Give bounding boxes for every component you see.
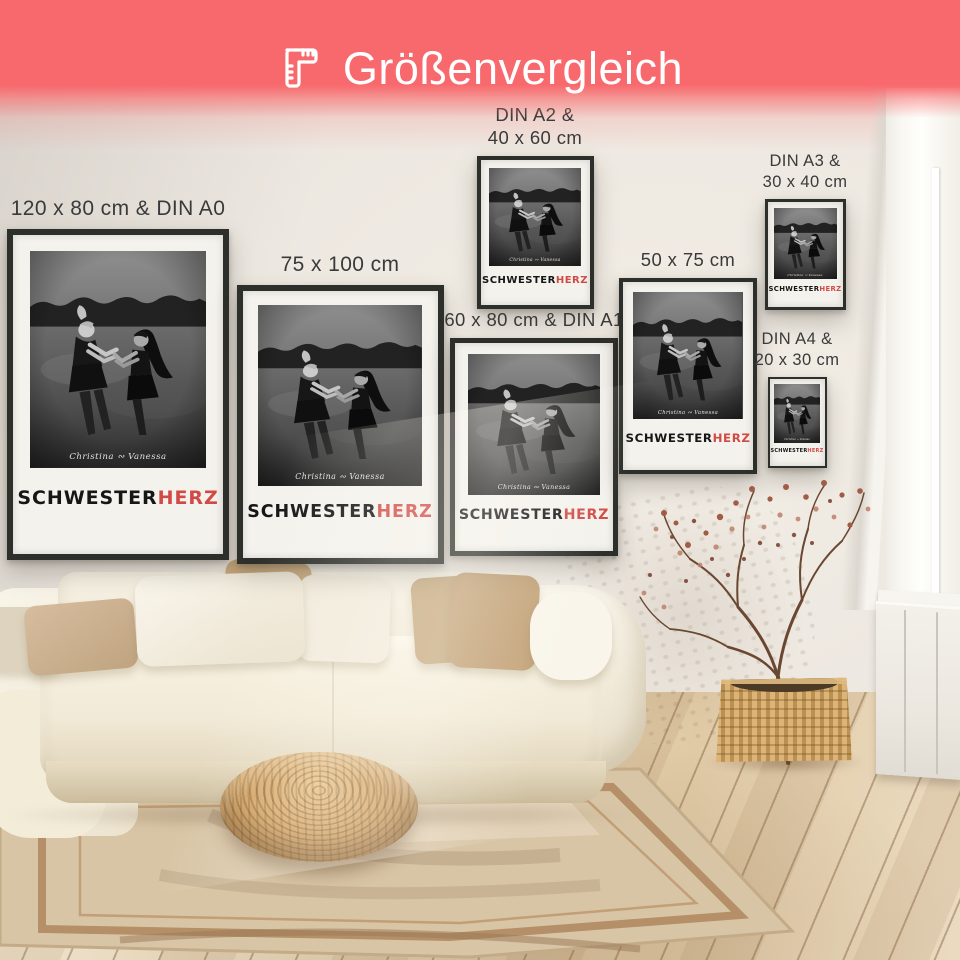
wicker-basket [716,666,852,764]
window-mullion [932,168,939,610]
poster-title: SCHWESTERHERZ [455,507,613,523]
poster-size-label: 120 x 80 cm & DIN A0 [11,196,226,222]
poster-photo: Christina ∾ Vanessa [774,208,837,279]
poster-120x80-din-a0: 120 x 80 cm & DIN A0 Christina ∾ Vanessa… [0,196,248,560]
poster-size-label: DIN A3 & 30 x 40 cm [763,151,848,192]
rattan-pouf [220,752,418,862]
header-content: Größenvergleich [277,16,683,121]
poster-size-label: DIN A4 & 20 x 30 cm [755,329,840,370]
poster-frame: Christina ∾ Vanessa SCHWESTERHERZ [7,229,229,560]
poster-names: Christina ∾ Vanessa [258,472,422,481]
pillow-white-large [134,571,305,667]
sofa-arm-cushion [530,592,612,680]
poster-names: Christina ∾ Vanessa [489,258,581,263]
poster-photo: Christina ∾ Vanessa [258,305,422,487]
poster-names: Christina ∾ Vanessa [468,483,601,491]
poster-names: Christina ∾ Vanessa [30,452,206,462]
poster-mat: Christina ∾ Vanessa SCHWESTERHERZ [768,202,843,307]
poster-din-a3-30x40: DIN A3 & 30 x 40 cm Christina ∾ Vanessa … [710,151,900,310]
poster-mat: Christina ∾ Vanessa SCHWESTERHERZ [13,235,223,554]
poster-title: SCHWESTERHERZ [13,487,223,509]
poster-names: Christina ∾ Vanessa [774,273,837,277]
poster-frame: Christina ∾ Vanessa SCHWESTERHERZ [765,199,846,310]
pillow-beige-woven-right [448,572,541,671]
poster-photo: Christina ∾ Vanessa [30,251,206,468]
pillow-white-back [297,574,392,663]
page-title: Größenvergleich [343,46,683,91]
poster-title: SCHWESTERHERZ [768,285,843,293]
poster-mat: Christina ∾ Vanessa SCHWESTERHERZ [481,160,590,305]
poster-photo: Christina ∾ Vanessa [468,354,601,495]
cabinet [876,601,960,780]
poster-photo: Christina ∾ Vanessa [489,168,581,267]
header-banner: Größenvergleich [0,0,960,118]
ruler-icon [277,44,325,94]
poster-size-label: 75 x 100 cm [281,252,400,278]
size-comparison-image: 120 x 80 cm & DIN A0 Christina ∾ Vanessa… [0,0,960,960]
poster-frame: Christina ∾ Vanessa SCHWESTERHERZ [477,156,594,309]
poster-title: SCHWESTERHERZ [481,275,590,286]
pillow-tan [23,597,139,676]
